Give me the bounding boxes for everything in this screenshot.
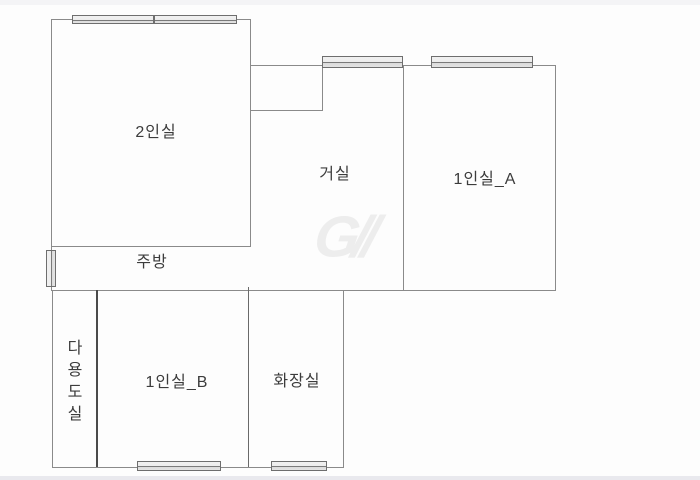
- room2in-window-right-midline: [155, 20, 236, 21]
- room2in-window-left: [72, 15, 154, 24]
- notch-bottom-wall: [250, 110, 323, 111]
- bath-window: [271, 461, 327, 471]
- bath-window-midline: [272, 466, 326, 467]
- room1inB-window: [137, 461, 221, 471]
- room1inB-window-midline: [138, 466, 220, 467]
- room2in-window-right: [154, 15, 237, 24]
- living-window: [322, 56, 403, 68]
- living-1inA-divider: [403, 65, 404, 291]
- room-label-2insil: 2인실: [135, 118, 176, 142]
- room-label-dayongdosil: 다용도실: [60, 339, 84, 427]
- bottom-edge-band: [0, 476, 700, 480]
- room2in-left-wall: [51, 19, 52, 247]
- kitchen-side-window: [46, 250, 56, 287]
- room-label-geosil: 거실: [319, 160, 350, 184]
- utility-divider-wall: [96, 290, 98, 468]
- bath-right-wall: [343, 291, 344, 468]
- room-label-1insil-a: 1인실_A: [454, 165, 517, 189]
- room2in-bottom-wall: [51, 246, 251, 247]
- living-window-midline: [323, 62, 402, 63]
- gw-watermark: G//: [310, 204, 376, 271]
- mid-horizontal-wall: [52, 290, 556, 291]
- notch-right-wall: [322, 65, 323, 111]
- room-label-1insil-b: 1인실_B: [146, 368, 209, 392]
- room1inA-window: [431, 56, 533, 68]
- floorplan-image: 2인실거실1인실_A주방다용도실1인실_B화장실 G//: [0, 0, 700, 480]
- kitchen-side-window-midline: [51, 251, 52, 286]
- room1inA-window-midline: [432, 62, 532, 63]
- room-label-jubang: 주방: [136, 248, 167, 272]
- room2in-right-wall: [250, 19, 251, 247]
- top-edge-band: [0, 0, 700, 5]
- room-label-hwajangsil: 화장실: [273, 367, 320, 391]
- room1inA-right-wall: [555, 65, 556, 291]
- room2in-window-left-midline: [73, 20, 153, 21]
- lower-left-wall: [52, 290, 53, 468]
- room1inB-bath-divider: [248, 287, 249, 468]
